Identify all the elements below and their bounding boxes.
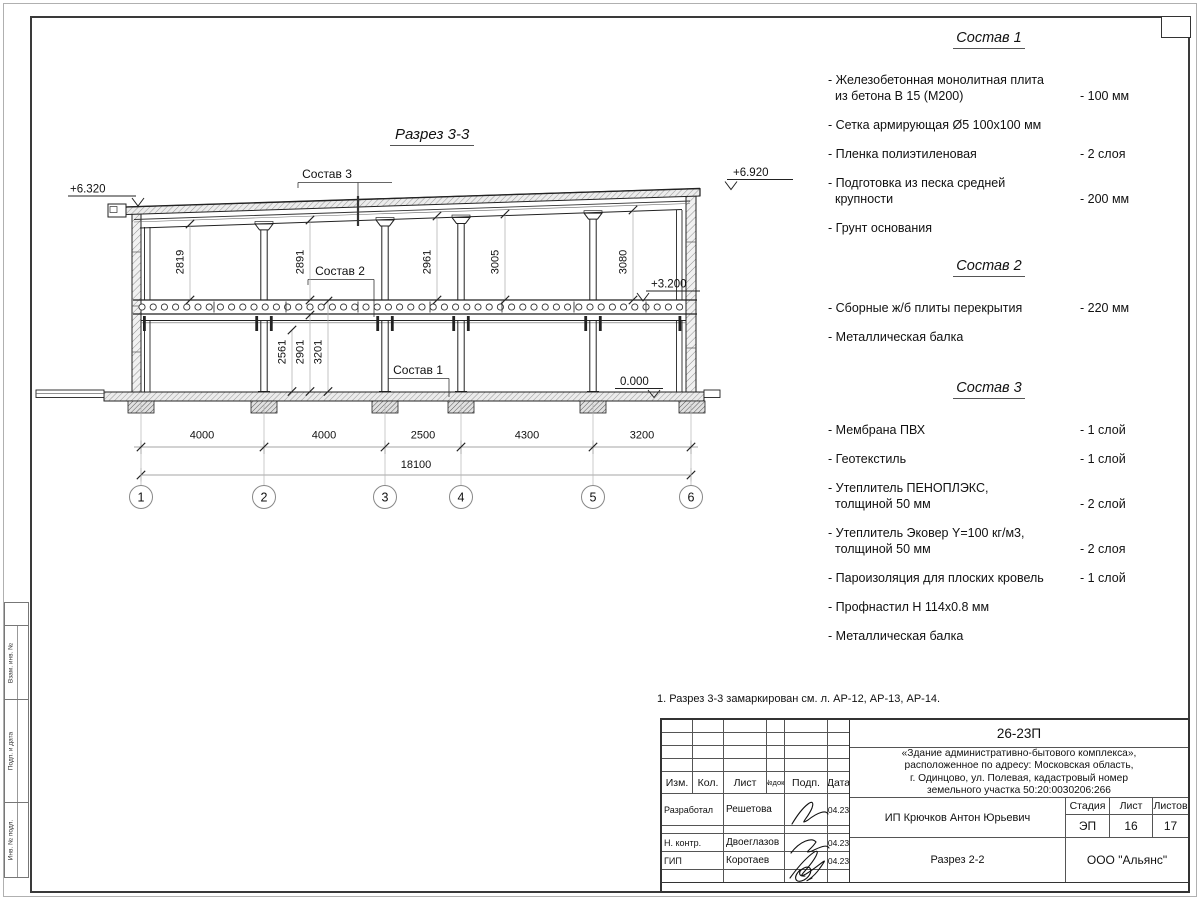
sign-row-ncontrol: Н. контр. Двоеглазов 04.23 — [662, 834, 849, 852]
svg-text:+6.320: +6.320 — [70, 184, 106, 196]
room-height-label: 3005 — [490, 250, 502, 274]
side-label: Взам. инв. № — [8, 642, 15, 682]
project-description: «Здание административно-бытового комплек… — [850, 748, 1188, 798]
room-height-label: 3080 — [618, 250, 630, 274]
room-height-label: 2901 — [295, 340, 307, 364]
lower-floor-dimensions: 256129013201 — [277, 297, 333, 396]
material-item: - Пароизоляция для плоских кровель - 1 с… — [828, 570, 1150, 586]
composition-heading: Состав 3 — [828, 380, 1150, 396]
material-item: - Сетка армирующая Ø5 100х100 мм — [828, 117, 1150, 133]
svg-text:+3.200: +3.200 — [651, 279, 687, 291]
section-drawing: Состав 3 Состав 2 Состав 1 +6.320 +6.920… — [30, 110, 800, 540]
sign-row-gip: ГИП Коротаев 04.23 — [662, 852, 849, 870]
bay-width-label: 3200 — [630, 430, 654, 442]
foundation-pads — [128, 401, 705, 413]
axis-grid: 123456 — [130, 404, 703, 509]
total-dimension: 18100 — [134, 447, 698, 482]
sheets-total: 17 — [1153, 815, 1188, 837]
room-height-label: 3201 — [313, 340, 325, 364]
sostav1-label: Состав 1 — [393, 363, 443, 377]
client-name: ИП Крючков Антон Юрьевич — [850, 798, 1066, 837]
material-item: - Металлическая балка — [828, 329, 1150, 345]
side-divider — [17, 803, 18, 877]
upper-floor-dimensions: 28192891296130053080 — [175, 206, 638, 304]
side-label: Инв. № подл. — [8, 820, 15, 861]
signature-cell — [785, 834, 828, 851]
material-item: - Утеплитель ПЕНОПЛЭКС,толщиной 50 мм - … — [828, 480, 1150, 512]
side-cell-empty — [5, 603, 28, 626]
leader-sostav2 — [308, 280, 374, 318]
material-item: - Пленка полиэтиленовая - 2 слоя — [828, 146, 1150, 162]
sostav2-label: Состав 2 — [315, 264, 365, 278]
side-cell-inv: Инв. № подл. — [5, 803, 28, 877]
side-divider — [17, 626, 18, 699]
material-item: - Железобетонная монолитная плитаиз бето… — [828, 72, 1150, 104]
bay-width-label: 4300 — [515, 430, 539, 442]
signature-cell — [785, 852, 828, 869]
bay-width-label: 4000 — [312, 430, 336, 442]
sheet-number: 16 — [1110, 815, 1153, 837]
room-height-label: 2891 — [295, 250, 307, 274]
side-cell-podp: Подп. и дата — [5, 700, 28, 803]
ground-slab — [104, 392, 704, 401]
title-block-revision-table: Изм. Кол. Лист №док. Подп. Дата Разработ… — [662, 720, 850, 882]
title-block: Изм. Кол. Лист №док. Подп. Дата Разработ… — [660, 718, 1190, 893]
axis-bubble: 1 — [138, 491, 145, 505]
doc-number: 26-23П — [850, 720, 1188, 748]
total-width-label: 18100 — [401, 459, 432, 471]
composition-1: Состав 1 - Железобетонная монолитная пли… — [828, 30, 1150, 249]
material-item: - Утеплитель Эковер Y=100 кг/м3,толщиной… — [828, 525, 1150, 557]
room-height-label: 2561 — [277, 340, 289, 364]
corner-box — [1161, 16, 1191, 38]
wall-joints — [132, 242, 696, 352]
bay-dimensions: 40004000250043003200 — [190, 430, 654, 442]
composition-3: Состав 3 - Мембрана ПВХ - 1 слой - Геоте… — [828, 380, 1150, 657]
side-label: Подп. и дата — [8, 732, 15, 770]
stage-table: Стадия Лист Листов ЭП 16 17 — [1066, 798, 1188, 837]
sostav3-label: Состав 3 — [302, 167, 352, 181]
title-block-bottom-strip — [662, 882, 1188, 891]
wall-right — [686, 196, 696, 392]
axis-bubble: 6 — [688, 491, 695, 505]
bay-width-label: 4000 — [190, 430, 214, 442]
material-item: - Геотекстиль - 1 слой — [828, 451, 1150, 467]
side-divider — [17, 700, 18, 802]
composition-heading: Состав 1 — [828, 30, 1150, 46]
svg-text:+6.920: +6.920 — [733, 167, 769, 179]
axis-bubble: 5 — [590, 491, 597, 505]
material-item: - Профнастил Н 114х0.8 мм — [828, 599, 1150, 615]
axis-bubble: 4 — [458, 491, 465, 505]
title-block-main: 26-23П «Здание административно-бытового … — [850, 720, 1188, 882]
material-item: - Мембрана ПВХ - 1 слой — [828, 422, 1150, 438]
wall-left — [132, 214, 141, 392]
material-item: - Металлическая балка — [828, 628, 1150, 644]
axis-bubble: 3 — [382, 491, 389, 505]
room-height-label: 2819 — [175, 250, 187, 274]
roof-slab — [110, 189, 700, 216]
hollow-core-voids — [139, 304, 683, 310]
axis-bubble: 2 — [261, 491, 268, 505]
material-item: - Грунт основания — [828, 220, 1150, 236]
elevation-eave-right: +6.920 — [725, 167, 793, 190]
drawing-name: Разрез 2-2 — [850, 838, 1066, 882]
revision-header-row: Изм. Кол. Лист №док. Подп. Дата — [662, 772, 849, 794]
company-name: ООО "Альянс" — [1066, 838, 1188, 882]
svg-text:0.000: 0.000 — [620, 376, 649, 388]
composition-2: Состав 2 - Сборные ж/б плиты перекрытия … — [828, 258, 1150, 358]
composition-heading: Состав 2 — [828, 258, 1150, 274]
sheet-note: 1. Разрез 3-3 замаркирован см. л. АР-12,… — [657, 693, 940, 705]
side-attribute-strip: Взам. инв. № Подп. и дата Инв. № подл. — [4, 602, 29, 878]
elevation-eave-left: +6.320 — [68, 184, 144, 207]
sign-row-developer: Разработал Решетова 04.23 — [662, 794, 849, 826]
signature-cell — [785, 794, 828, 825]
room-height-label: 2961 — [422, 250, 434, 274]
ceiling-line — [140, 210, 682, 229]
side-cell-vzam: Взам. инв. № — [5, 626, 28, 700]
material-item: - Подготовка из песка среднейкрупности -… — [828, 175, 1150, 207]
ground-ledge-right — [704, 390, 720, 398]
bay-width-label: 2500 — [411, 430, 435, 442]
material-item: - Сборные ж/б плиты перекрытия - 220 мм — [828, 300, 1150, 316]
stage-value: ЭП — [1066, 815, 1110, 837]
